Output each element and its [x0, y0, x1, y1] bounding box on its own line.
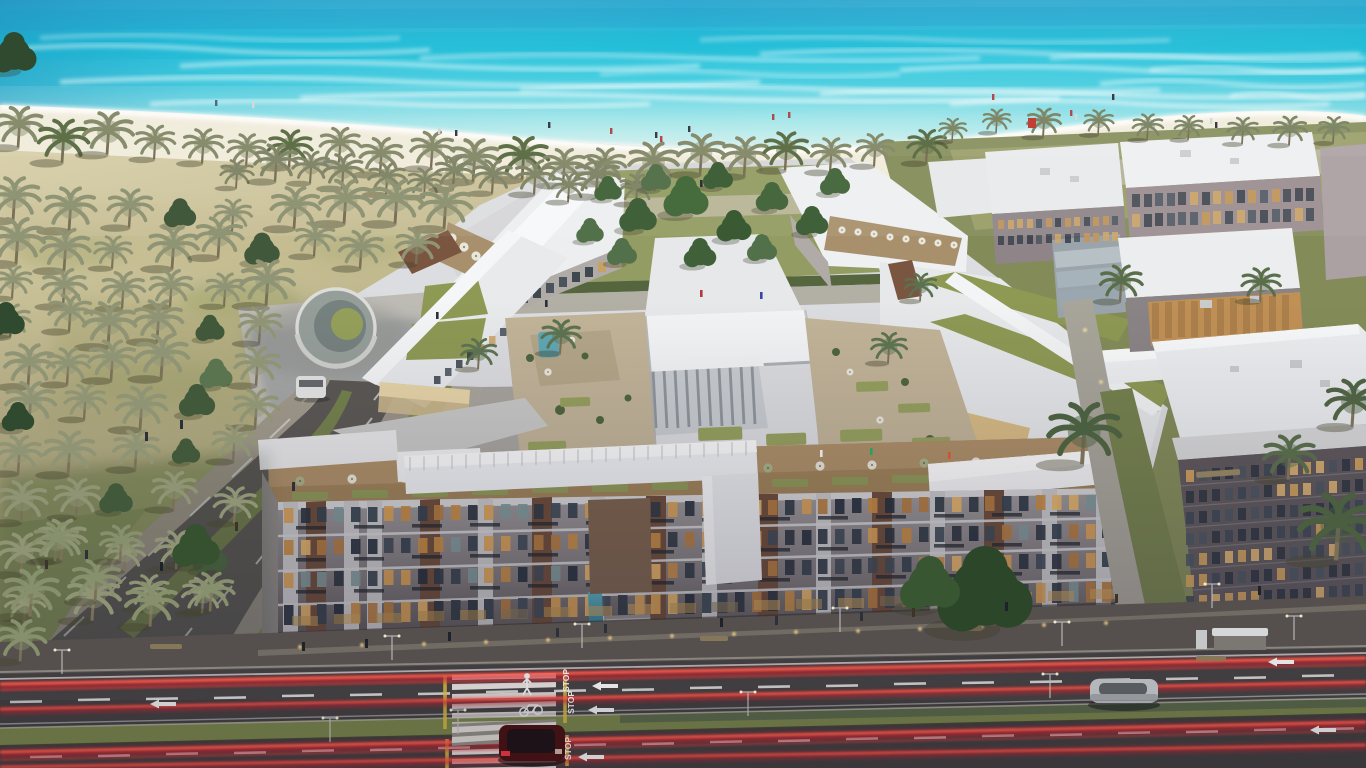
svg-text:STOP: STOP	[561, 669, 571, 692]
